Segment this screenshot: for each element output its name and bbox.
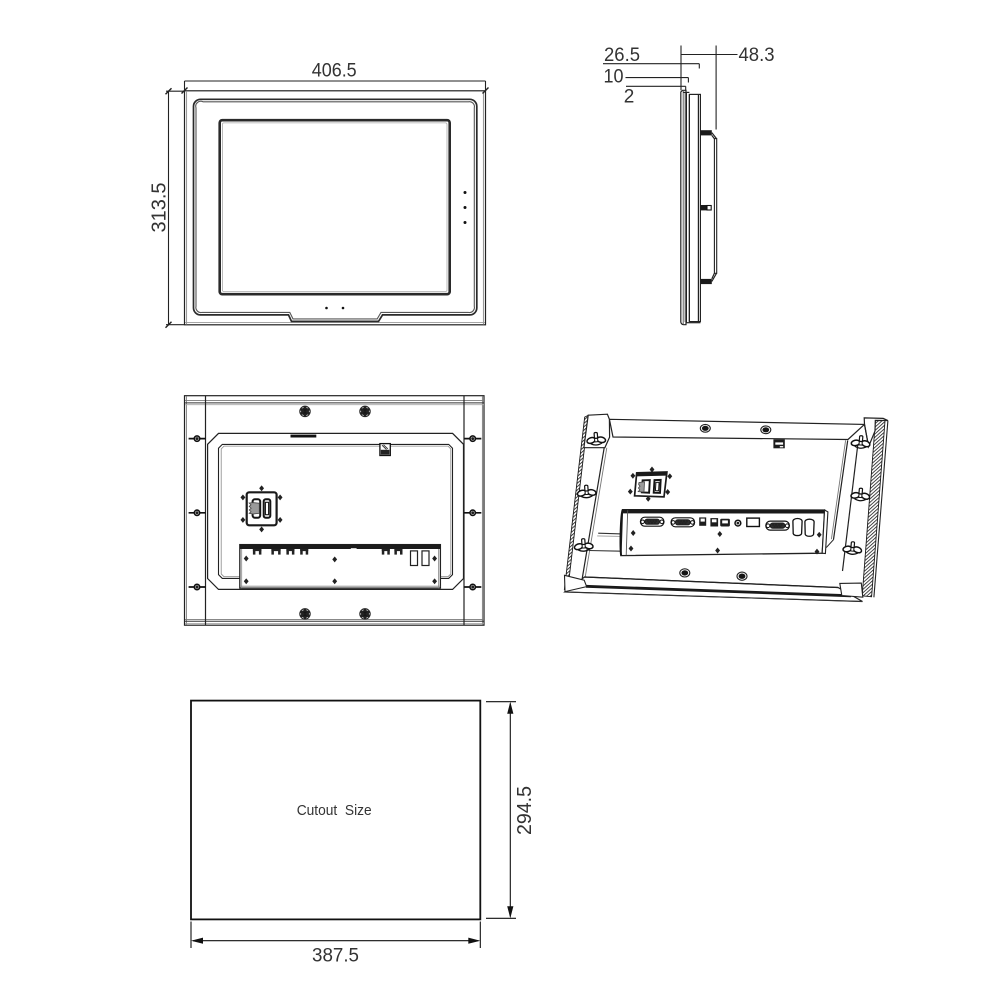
svg-text:10: 10 [604,67,624,88]
svg-text:26.5: 26.5 [604,45,640,66]
svg-text:294.5: 294.5 [513,786,536,835]
svg-text:387.5: 387.5 [312,945,359,966]
svg-text:Cutout Size: Cutout Size [297,803,372,819]
svg-text:313.5: 313.5 [149,183,171,233]
svg-text:2: 2 [624,87,635,108]
svg-text:406.5: 406.5 [312,60,357,81]
svg-text:48.3: 48.3 [739,45,775,66]
